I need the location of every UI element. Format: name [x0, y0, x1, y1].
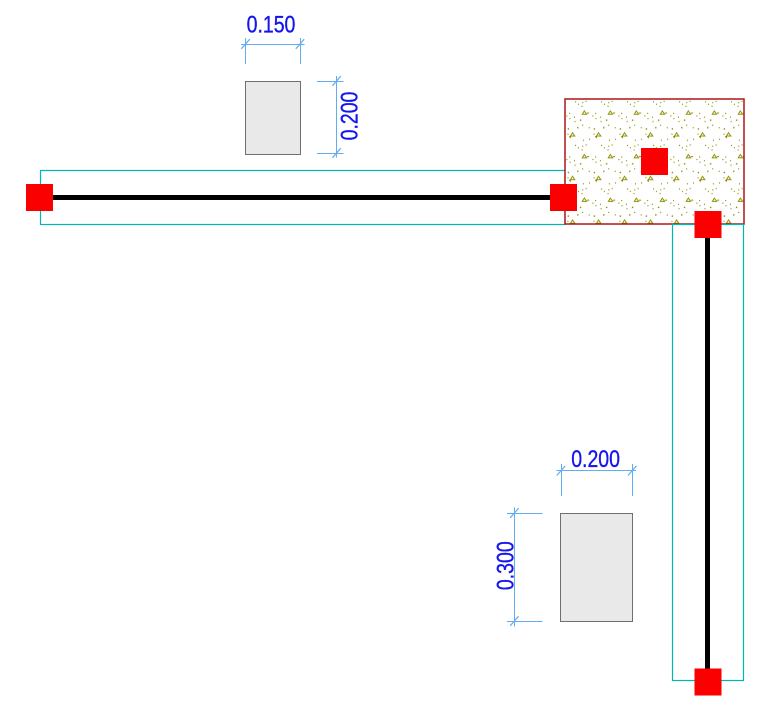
- svg-text:0.200: 0.200: [571, 446, 620, 473]
- svg-text:0.200: 0.200: [337, 92, 364, 141]
- svg-text:0.150: 0.150: [247, 12, 296, 39]
- svg-text:0.300: 0.300: [493, 541, 520, 590]
